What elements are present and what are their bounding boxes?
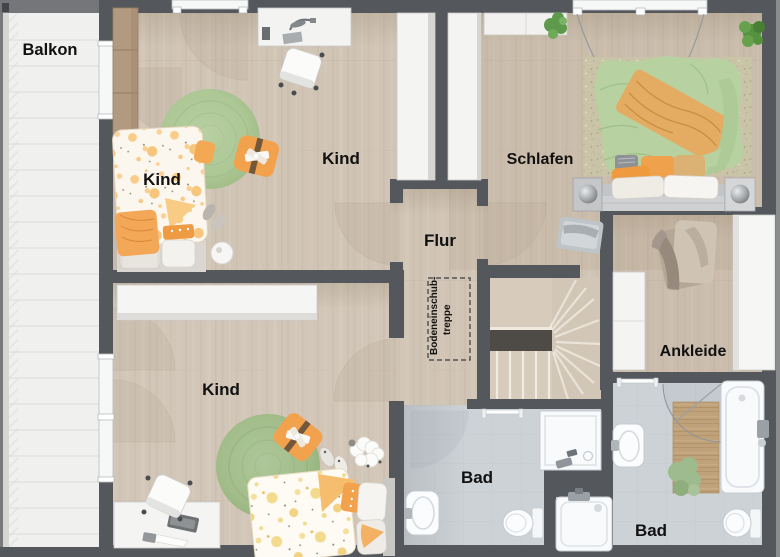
svg-text:Bad: Bad [461, 468, 493, 487]
svg-text:Ankleide: Ankleide [660, 343, 727, 360]
svg-text:Flur: Flur [424, 231, 456, 250]
svg-text:Bad: Bad [635, 521, 667, 540]
svg-text:Schlafen: Schlafen [507, 151, 574, 168]
svg-text:treppe: treppe [442, 304, 453, 335]
svg-text:Kind: Kind [202, 380, 240, 399]
svg-text:Kind: Kind [143, 170, 181, 189]
svg-text:Bodeneinschub-: Bodeneinschub- [429, 277, 440, 355]
svg-text:Kind: Kind [322, 149, 360, 168]
svg-text:Balkon: Balkon [22, 41, 77, 59]
